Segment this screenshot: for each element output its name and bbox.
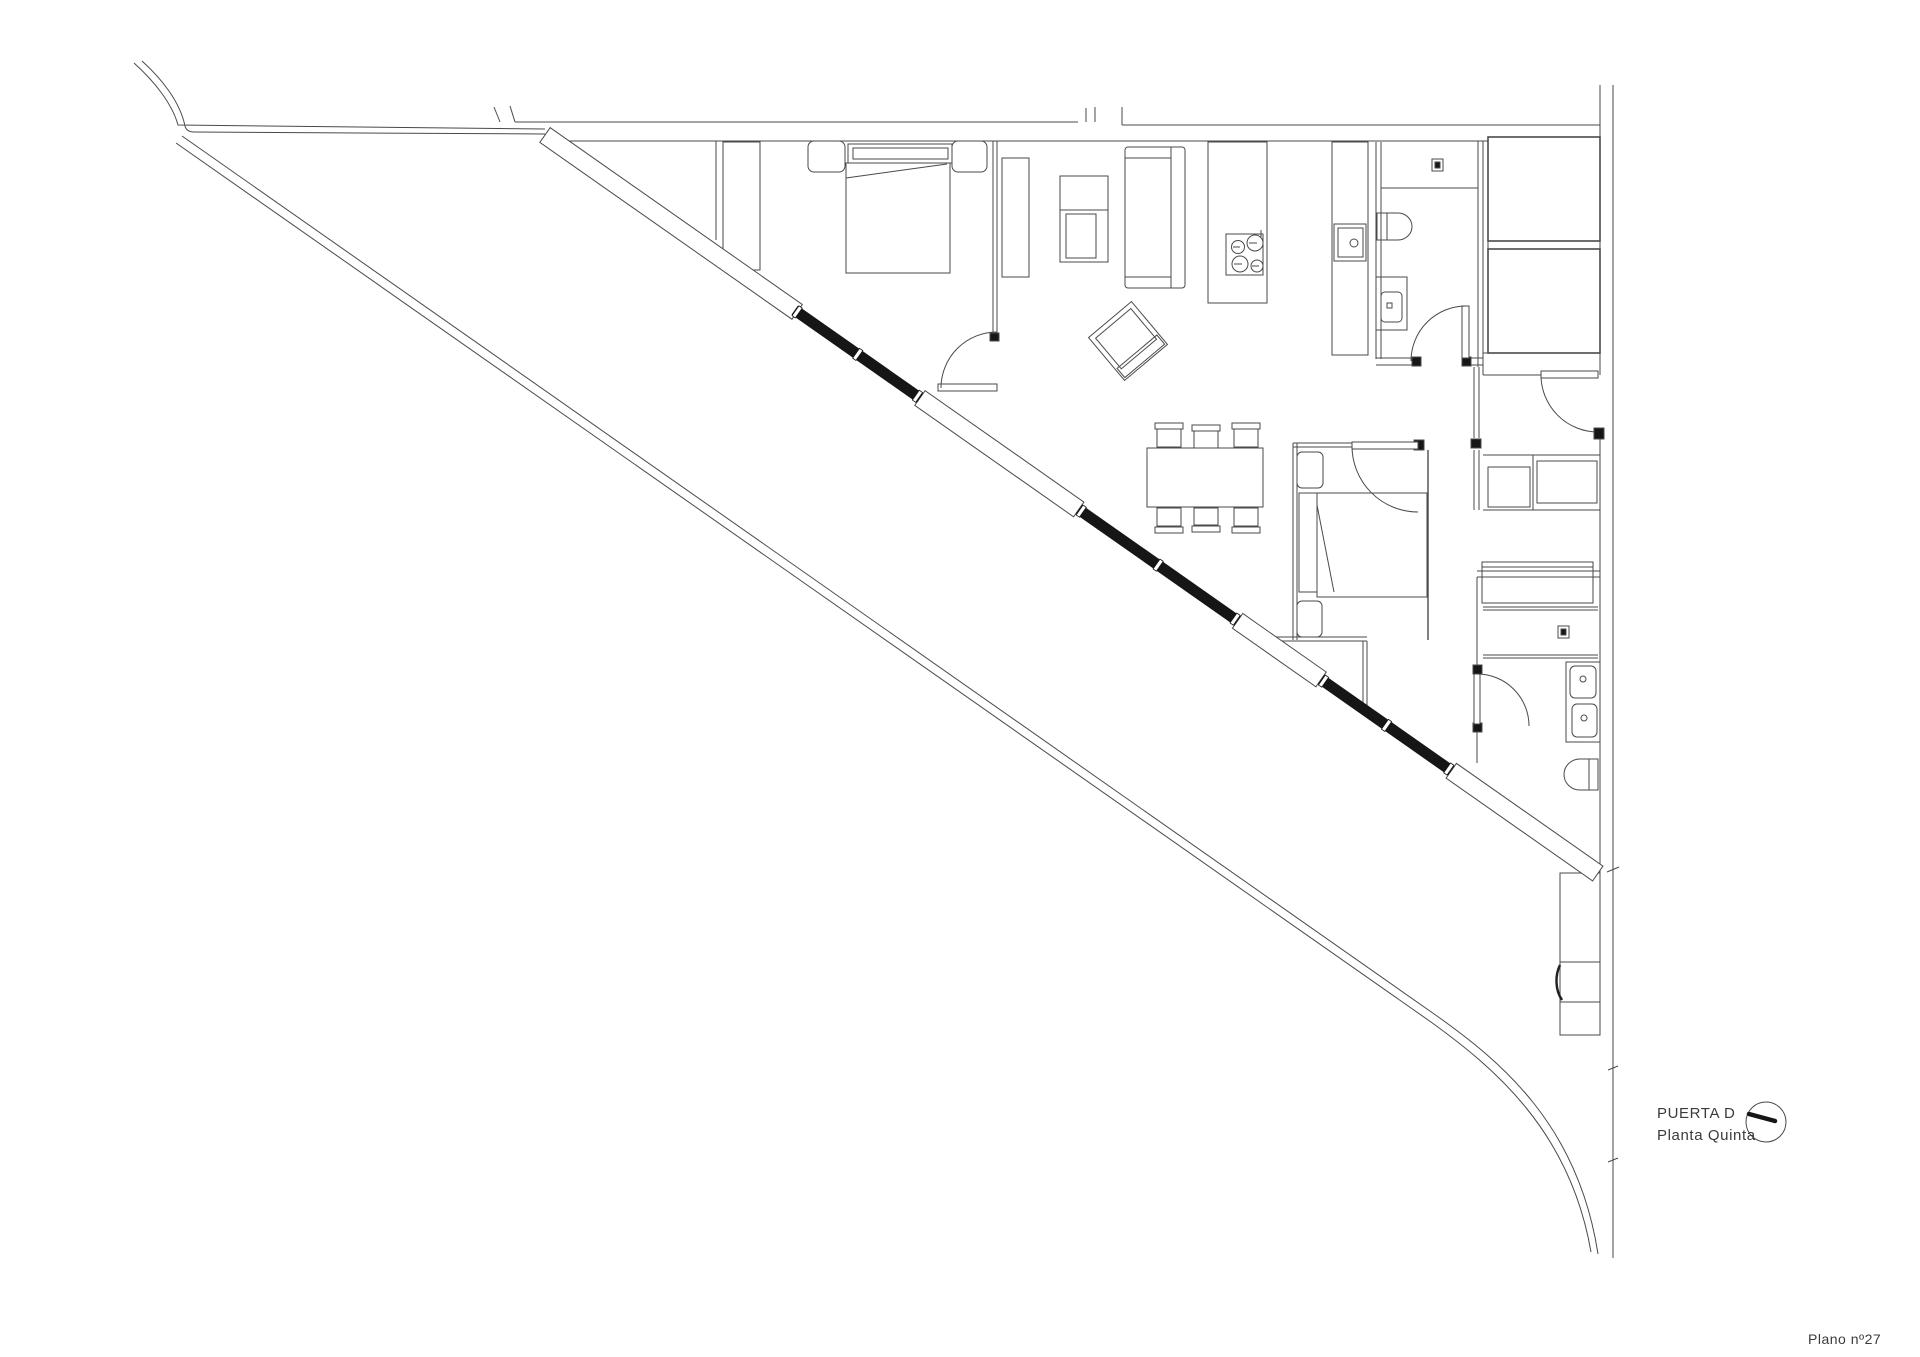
bedroom1-door bbox=[938, 332, 997, 391]
living-room-furniture bbox=[1002, 147, 1185, 380]
exterior-cabinet bbox=[1556, 873, 1600, 1035]
entrance-door bbox=[1541, 371, 1604, 439]
bathroom2-shower bbox=[1483, 607, 1598, 658]
bedroom1-walls bbox=[716, 141, 999, 341]
bathroom1-toilet bbox=[1377, 213, 1412, 240]
dining-table-and-chairs bbox=[1147, 423, 1263, 533]
bathroom1-door bbox=[1411, 306, 1469, 361]
bedroom2-door bbox=[1352, 442, 1418, 512]
bathroom2-toilet bbox=[1564, 759, 1598, 790]
title-block: PUERTA D Planta Quinta bbox=[1657, 1103, 1756, 1147]
bathroom2-vanity bbox=[1566, 662, 1600, 742]
exterior-walls bbox=[494, 85, 1619, 1258]
floor-plan-page: PUERTA D Planta Quinta Plano nº27 bbox=[0, 0, 1920, 1357]
kitchen-island bbox=[1208, 142, 1267, 303]
closet bbox=[1483, 455, 1600, 510]
bathroom1-shower-drain bbox=[1432, 159, 1443, 171]
floor-plan-drawing bbox=[0, 0, 1920, 1357]
corridor-walls bbox=[1471, 367, 1481, 510]
bedroom2-walls bbox=[1262, 440, 1428, 708]
plan-number: Plano nº27 bbox=[1808, 1331, 1881, 1347]
bathroom2-walls bbox=[1473, 571, 1600, 763]
bedroom2-bed bbox=[1297, 452, 1427, 637]
glass-facade bbox=[540, 128, 1603, 881]
bathroom2-cabinet bbox=[1482, 562, 1593, 603]
service-shafts bbox=[1483, 137, 1600, 375]
unit-label: PUERTA D bbox=[1657, 1103, 1756, 1125]
bathroom2-door bbox=[1474, 674, 1529, 726]
kitchen-counter bbox=[1332, 142, 1368, 355]
floor-label: Planta Quinta bbox=[1657, 1125, 1756, 1147]
bedroom1-bed bbox=[808, 141, 987, 273]
